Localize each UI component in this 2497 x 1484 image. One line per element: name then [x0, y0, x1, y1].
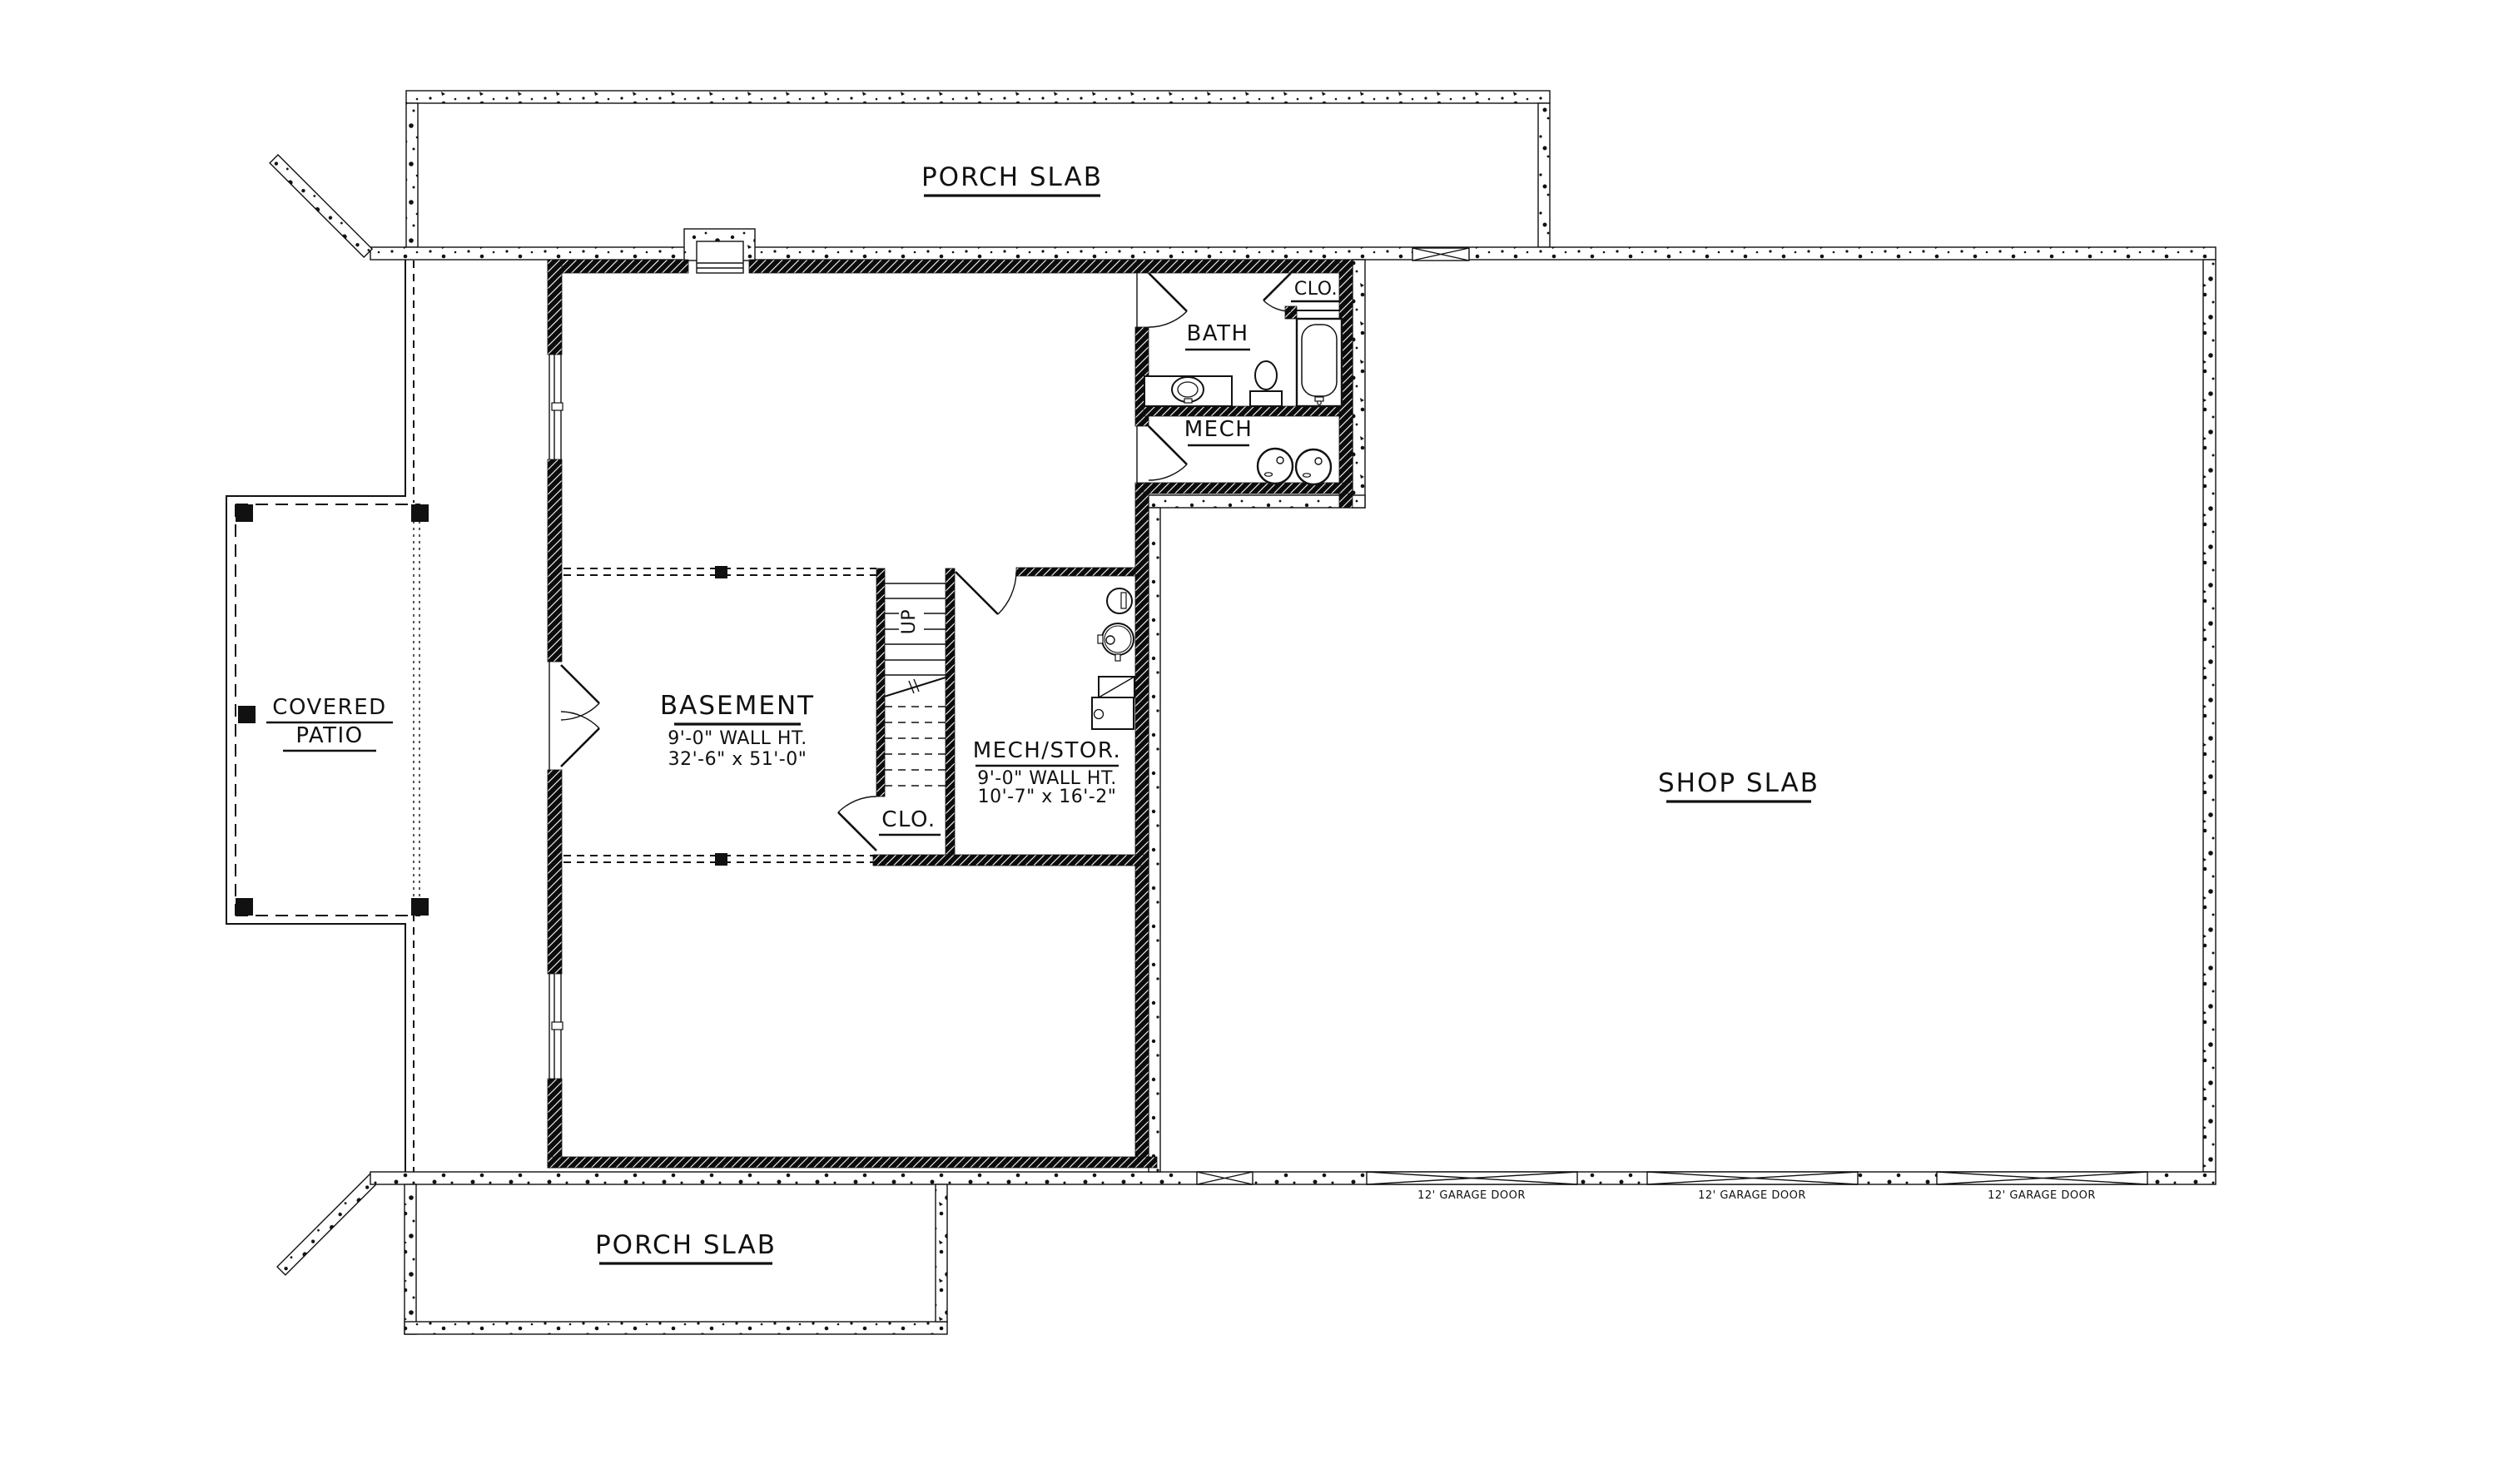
basement-left-window-lower	[549, 974, 563, 1079]
patio-double-door	[549, 662, 599, 770]
west-slab-edge-lines	[405, 260, 414, 1172]
patio-post	[238, 706, 256, 723]
beam-above-lower	[563, 853, 873, 866]
toilet	[1250, 361, 1282, 406]
shop-bottom-window-box	[1197, 1172, 1253, 1184]
mech-label: MECH	[1184, 417, 1253, 442]
patio-post	[411, 504, 429, 522]
egress-window-well	[684, 229, 755, 273]
entry-walk-diagonal-bottom	[277, 1173, 380, 1275]
covered-patio-label-line2: PATIO	[295, 723, 363, 748]
floor-plan-canvas: UP	[0, 0, 2497, 1484]
bath-vanity-sink	[1144, 376, 1232, 406]
garage-door-1: 12' GARAGE DOOR	[1367, 1172, 1577, 1202]
garage-door-1-label: 12' GARAGE DOOR	[1417, 1189, 1526, 1202]
bath-label: BATH	[1186, 321, 1248, 346]
mech-stor-label: MECH/STOR.	[973, 738, 1122, 763]
garage-door-3: 12' GARAGE DOOR	[1937, 1172, 2147, 1202]
stairs-closet-label: CLO.	[881, 807, 936, 832]
column-post	[715, 566, 727, 578]
stairs: UP	[881, 583, 946, 786]
shop-slab-label: SHOP SLAB	[1658, 768, 1819, 798]
column-post	[715, 853, 727, 866]
porch-slab-bottom-label: PORCH SLAB	[595, 1230, 777, 1260]
mech-door	[1137, 426, 1187, 483]
shop-slab-right-edge	[2203, 260, 2216, 1172]
beam-above-upper	[563, 566, 876, 578]
basement-left-window-upper	[549, 355, 563, 459]
bathtub	[1297, 319, 1342, 406]
patio-post	[411, 898, 429, 916]
bath-closet-label: CLO.	[1294, 279, 1338, 300]
patio-post	[236, 504, 253, 522]
main-slab-top-edge	[370, 247, 2216, 260]
garage-door-2-label: 12' GARAGE DOOR	[1698, 1189, 1806, 1202]
shop-top-window-box	[1412, 248, 1469, 261]
stairs-up-label: UP	[899, 609, 920, 634]
basement-dimensions: 32'-6" x 51'-0"	[668, 749, 807, 770]
mech-stor-door	[956, 572, 1016, 614]
garage-door-3-label: 12' GARAGE DOOR	[1988, 1189, 2096, 1202]
basement-wall-height: 9'-0" WALL HT.	[668, 728, 807, 749]
floor-plan-page: UP	[0, 0, 2497, 1484]
basement-label: BASEMENT	[660, 691, 815, 721]
mech-stor-dimensions: 10'-7" x 16'-2"	[978, 787, 1117, 807]
bath-door	[1137, 273, 1187, 327]
garage-door-2: 12' GARAGE DOOR	[1647, 1172, 1858, 1202]
patio-post	[236, 898, 253, 916]
mech-water-heaters	[1258, 449, 1331, 484]
stairs-closet-door	[838, 797, 876, 851]
mech-stor-appliances	[1092, 588, 1134, 729]
room-labels: PORCH SLAB CLO. BATH MECH BASEMENT 9'-0"…	[266, 162, 1819, 1263]
entry-walk-diagonal-top	[270, 155, 372, 257]
porch-slab-top-label: PORCH SLAB	[921, 162, 1103, 192]
covered-patio-label-line1: COVERED	[272, 695, 386, 720]
